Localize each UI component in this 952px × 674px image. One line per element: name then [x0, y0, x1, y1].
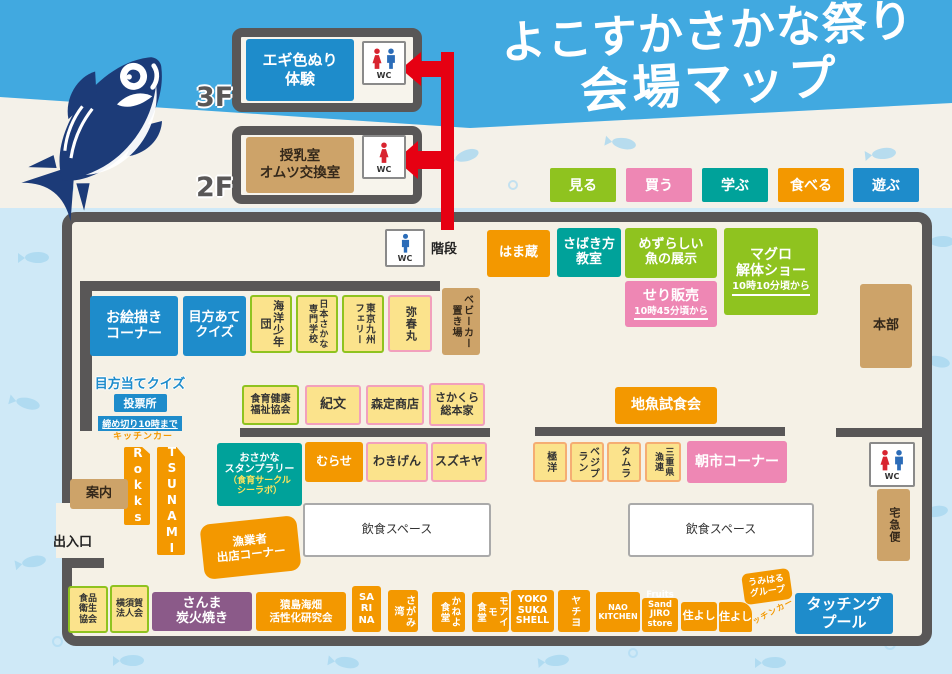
wc-label: WC	[377, 166, 392, 174]
stairs-label: 階段	[431, 238, 457, 257]
legend-miru: 見る	[550, 168, 616, 202]
fish-deco	[21, 554, 47, 569]
tuna-illustration	[6, 16, 214, 224]
bubble-deco	[52, 636, 63, 647]
booth-kibun: 紀文	[305, 385, 361, 425]
booth-yachiyo: ヤチヨ	[558, 590, 590, 632]
booth-yaharumaru: 弥春丸	[388, 295, 432, 352]
floor2-room: 授乳室 オムツ交換室	[246, 137, 354, 193]
maguro-time: 10時10分頃から	[732, 281, 810, 296]
wc-male-icon	[893, 449, 905, 472]
dining-space-left: 飲食スペース	[303, 503, 491, 557]
floor2-wc: WC	[362, 135, 406, 179]
bubble-deco	[508, 180, 518, 190]
booth-tamura: タムラ	[607, 442, 641, 482]
booth-touching-pool: タッチング プール	[795, 593, 893, 634]
booth-sarushima-umihata: 猿島海畑 活性化研究会	[256, 592, 346, 631]
fish-deco	[762, 657, 786, 668]
wall-segment	[80, 281, 440, 291]
wc-female-icon	[378, 141, 390, 165]
fish-deco	[15, 395, 41, 411]
booth-kyokuyo: 極洋	[533, 442, 567, 482]
wc-stairs: WC	[385, 229, 425, 267]
booth-oekaki-corner: お絵描き コーナー	[90, 296, 178, 356]
floor3-room: エギ色ぬり 体験	[246, 39, 354, 101]
booth-sarina: SA RI NA	[352, 586, 381, 632]
booth-kaneyo-shokudo: かねよ 食堂	[432, 592, 465, 632]
vote-sub: 投票所	[114, 394, 167, 412]
dining-space-right: 飲食スペース	[628, 503, 814, 557]
stamp-main: おさかな スタンプラリー	[225, 453, 295, 476]
stairs-arrow-2f	[417, 151, 443, 169]
booth-takkyubin: 宅急便	[877, 489, 910, 561]
fish-deco	[930, 236, 952, 247]
booth-hamakura: はま蔵	[487, 230, 550, 277]
stairs-arrow-3f	[420, 61, 443, 77]
wall-segment	[62, 558, 104, 568]
legend-kau: 買う	[626, 168, 692, 202]
legend-asobu: 遊ぶ	[853, 168, 919, 202]
booth-morisada: 森定商店	[366, 385, 424, 425]
booth-tokyo-kyushu-ferry: 東京九州 フェリー	[342, 295, 384, 353]
booth-maguro-kaitai-show: マグロ 解体ショー 10時10分頃から	[724, 228, 818, 315]
seri-time: 10時45分頃から	[634, 306, 708, 320]
booth-gyogyosha-corner: 漁業者 出店コーナー	[199, 515, 301, 580]
vote-title: 目方当てクイズ	[85, 378, 195, 392]
fish-deco	[25, 252, 49, 263]
booth-asaichi-corner: 朝市コーナー	[687, 441, 787, 483]
booth-murase: むらせ	[305, 442, 363, 482]
booth-shokuhin-eisei: 食品 衛生 協会	[68, 586, 108, 633]
booth-wakigen: わきげん	[366, 442, 428, 482]
booth-mezurashii-sakana: めずらしい 魚の展示	[625, 228, 717, 278]
booth-annai: 案内	[70, 479, 128, 509]
wc-label: WC	[377, 72, 392, 80]
fish-deco	[544, 654, 569, 667]
legend-manabu: 学ぶ	[702, 168, 768, 202]
booth-fruits-sand-jiro: Fruits Sand JIRO store	[642, 598, 678, 632]
maguro-label: マグロ 解体ショー	[736, 247, 806, 279]
booth-mekata-vote: 目方当てクイズ 投票所 締め切り10時まで	[85, 378, 195, 431]
fish-deco	[120, 655, 144, 666]
booth-vegiplan: ベジプラン	[570, 442, 604, 482]
booth-kaiyo-shonendan: 海洋少年団	[250, 295, 292, 353]
fish-deco	[334, 655, 359, 669]
booth-sanma-sumibiyaki: さんま 炭火焼き	[152, 592, 252, 631]
wc-female-icon	[371, 47, 383, 71]
booth-mieken-gyoren: 三重県 漁連	[645, 442, 681, 482]
wc-male-icon	[400, 233, 411, 254]
booth-moaimo-shokudo: モアイモ 食堂	[472, 592, 509, 632]
booth-jizakana-shishokukai: 地魚試食会	[615, 387, 717, 424]
booth-mekata-quiz: 目方あて クイズ	[183, 296, 246, 356]
booth-tsunami: TSUNAMI	[157, 447, 185, 555]
wc-label: WC	[885, 473, 900, 481]
booth-seri-hanbai: せり販売 10時45分頃から	[625, 281, 717, 327]
booth-stroller-area: ベビーカー 置き場	[442, 288, 480, 355]
stamp-sub: （食育サークル シーラボ）	[228, 476, 291, 497]
booth-sagamiwan: さがみ湾	[388, 590, 418, 632]
seri-label: せり販売	[643, 288, 699, 304]
booth-sakakura: さかくら 総本家	[429, 383, 485, 426]
booth-sabaki-kyoshitsu: さばき方 教室	[557, 228, 621, 277]
wc-male-icon	[385, 47, 397, 71]
wall-segment	[535, 427, 785, 436]
wall-segment	[240, 428, 490, 437]
wc-right: WC	[869, 442, 915, 487]
booth-osakana-stamp-rally: おさかな スタンプラリー （食育サークル シーラボ）	[217, 443, 302, 506]
booth-honbu: 本部	[860, 284, 912, 368]
booth-sumiyoshi-1: 住よし	[681, 602, 717, 631]
booth-nihon-sakana-senmongakko: 日本さかな 専門学校	[296, 295, 338, 353]
wc-female-icon	[879, 449, 891, 472]
wc-label: WC	[398, 255, 413, 263]
booth-nao-kitchen: NAO KITCHEN	[596, 592, 640, 632]
booth-yokosuka-shell: YOKO SUKA SHELL	[511, 590, 554, 632]
festival-map-poster: よこすかさかな祭り 会場マップ	[0, 0, 952, 674]
legend-taberu: 食べる	[778, 168, 844, 202]
bubble-deco	[628, 648, 638, 658]
exit-label: 出入口	[53, 531, 92, 550]
kitchen-car-label-left: キッチンカー	[113, 429, 173, 442]
floor3-wc: WC	[362, 41, 406, 85]
stairs-route-line	[441, 52, 454, 230]
booth-suzukiya: スズキヤ	[431, 442, 487, 482]
wall-segment	[836, 428, 924, 437]
booth-shokuiku-kenko: 食育健康 福祉協会	[242, 385, 299, 425]
booth-yokosuka-hojinkai: 横須賀 法人会	[110, 585, 149, 633]
